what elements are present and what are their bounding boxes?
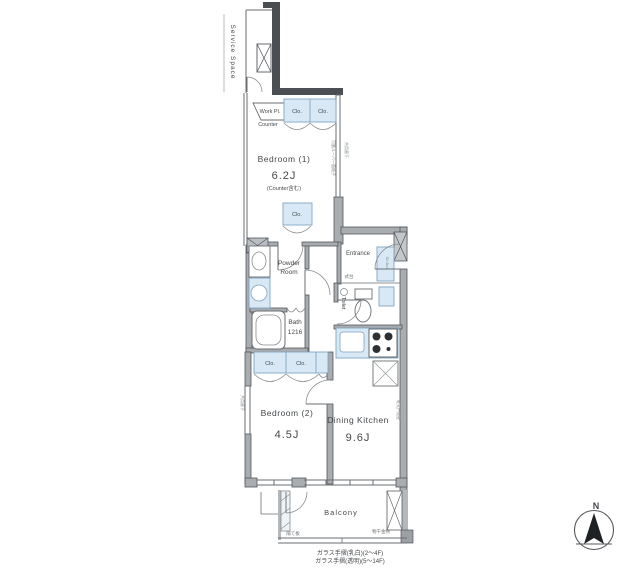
boundary-wall-note: 乾式戸境壁 — [396, 400, 402, 420]
wall — [245, 434, 251, 484]
dining-kitchen-size: 9.6J — [346, 432, 371, 444]
compass-needle — [584, 513, 604, 544]
floor-plan-page: N Service Space Work Pl. Counter Clo. Cl… — [0, 0, 640, 569]
corridor-note: 共用廊下 — [344, 142, 350, 158]
powder-door-arc — [305, 270, 330, 295]
wall — [337, 242, 341, 284]
bedroom2-size: 4.5J — [275, 429, 300, 441]
bedroom2-name: Bedroom (2) — [261, 408, 314, 418]
bathtub — [252, 311, 285, 349]
wall — [396, 478, 407, 487]
bath-folding-door — [287, 308, 305, 312]
dining-kitchen-name: Dining Kitchen — [327, 415, 389, 425]
wall — [245, 352, 251, 386]
wall — [305, 245, 309, 269]
stove-burner — [373, 333, 381, 341]
balcony-label: Balcony — [324, 508, 358, 517]
bath-size: 1216 — [288, 329, 303, 336]
railing-note-1: ガラス手摺(乳白)(2〜4F) — [317, 549, 383, 557]
bedroom2-fixtures — [254, 352, 330, 404]
wall — [272, 88, 343, 95]
powder-room-label-1: Powder — [278, 260, 301, 267]
balcony-partition-board — [281, 491, 290, 531]
corridor-note: 共用廊下 — [240, 395, 246, 411]
powder-room-label-2: Room — [280, 269, 297, 276]
shoe-box-label: Sh.Box — [385, 257, 390, 270]
toilet-bowl — [355, 300, 371, 322]
kitchen-area — [336, 328, 398, 386]
balcony-left-wall — [278, 490, 281, 540]
washer-drum — [251, 285, 267, 301]
hall-area — [278, 203, 330, 295]
closet-folding-door — [283, 226, 311, 233]
toilet-hand-basin — [341, 289, 348, 296]
closet-label: Clo. — [265, 361, 275, 367]
work-place-label: Work Pl. — [260, 109, 281, 115]
wall — [334, 197, 343, 244]
service-door-arc — [247, 77, 262, 92]
floor-plan-drawing: N Service Space Work Pl. Counter Clo. Cl… — [0, 0, 640, 569]
stove — [369, 329, 397, 357]
louver-note: 可動ルーバー面格子 — [331, 140, 337, 176]
wall — [292, 478, 306, 487]
closet-label: Clo. — [296, 361, 306, 367]
toilet-cabinet — [379, 287, 394, 306]
bedroom1-note: (Counter含む) — [267, 184, 301, 192]
compass-north-label: N — [593, 501, 600, 511]
wall — [334, 283, 338, 302]
toilet-label: Toilet — [340, 297, 346, 310]
compass: N — [575, 501, 614, 550]
kitchen-sink — [340, 332, 364, 352]
wall — [400, 269, 407, 492]
entrance-label: Entrance — [346, 251, 371, 257]
railing-note-2: ガラス手摺(透明)(5〜14F) — [315, 557, 385, 565]
stove-burner-small — [387, 347, 391, 351]
wall — [302, 242, 338, 246]
counter-label: Counter — [258, 122, 278, 128]
entrance-step-label: 式台 — [345, 273, 354, 280]
wall — [305, 295, 309, 352]
service-space-label: Service Space — [229, 25, 236, 80]
closet-label: Clo. — [292, 212, 302, 218]
stove-burner — [373, 345, 381, 353]
hanger-note: 物干金物 — [372, 528, 390, 535]
closet-label: Clo. — [292, 109, 302, 115]
wall — [245, 478, 257, 487]
wall-block — [401, 530, 413, 543]
closet-folding-doors — [254, 374, 328, 382]
closet-label: Clo. — [318, 109, 328, 115]
exterior-walls-dark — [263, 2, 343, 95]
stove-burner — [385, 333, 393, 341]
partition-note: 隔て板 — [286, 530, 300, 537]
toilet-tank — [355, 289, 372, 299]
wall — [272, 3, 280, 94]
bedroom1-name: Bedroom (1) — [258, 154, 311, 164]
bedroom2-door-arc — [306, 380, 330, 404]
bath-name: Bath — [288, 319, 302, 326]
bedroom1-size: 6.2J — [272, 170, 297, 182]
closet-folding-doors — [284, 123, 336, 130]
